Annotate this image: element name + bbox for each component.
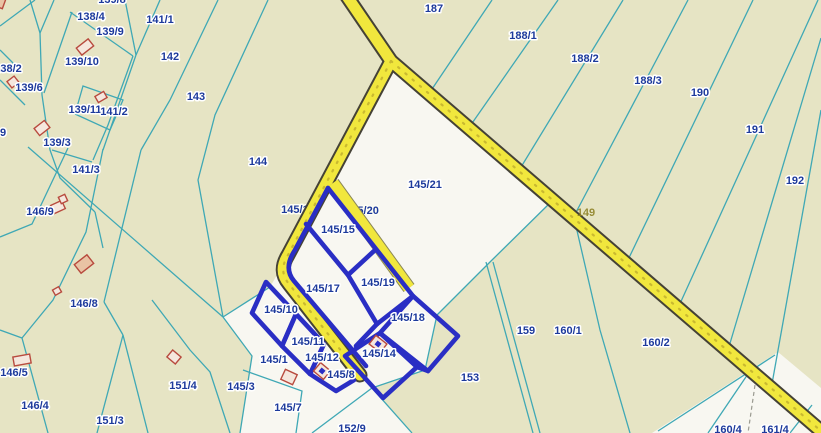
- parcel-label-141-2[interactable]: 141/2: [100, 106, 128, 118]
- building-icon: [13, 354, 31, 366]
- parcel-label-160-1[interactable]: 160/1: [554, 325, 582, 337]
- parcel-label-146-5[interactable]: 146/5: [0, 367, 28, 379]
- parcel-label-151-4[interactable]: 151/4: [169, 380, 197, 392]
- parcel-label-145-21[interactable]: 145/21: [408, 179, 442, 191]
- parcel-label-141-3[interactable]: 141/3: [72, 164, 100, 176]
- parcel-label-159[interactable]: 159: [517, 325, 535, 337]
- parcel-label-142[interactable]: 142: [161, 51, 179, 63]
- parcel-label-151-3[interactable]: 151/3: [96, 415, 124, 427]
- parcel-label-191[interactable]: 191: [746, 124, 764, 136]
- parcel-label-139-11[interactable]: 139/11: [68, 104, 101, 116]
- parcel-label-188-2[interactable]: 188/2: [571, 53, 599, 65]
- parcel-label-145-18[interactable]: 145/18: [391, 312, 425, 324]
- parcel-label-187[interactable]: 187: [425, 3, 443, 15]
- parcel-label-145-7[interactable]: 145/7: [274, 402, 302, 414]
- parcel-label-144[interactable]: 144: [249, 156, 268, 168]
- parcel-label-138-2[interactable]: 138/2: [0, 63, 22, 75]
- parcel-label-190[interactable]: 190: [691, 87, 709, 99]
- parcel-label-9[interactable]: 9: [0, 127, 6, 139]
- parcel-label-139-10[interactable]: 139/10: [65, 56, 99, 68]
- parcel-label-161-4[interactable]: 161/4: [761, 424, 789, 433]
- parcel-label-146-4[interactable]: 146/4: [21, 400, 49, 412]
- map-viewport[interactable]: 145/16145/20 149 139/8138/4139/9141/1142…: [0, 0, 821, 433]
- parcel-label-160-4[interactable]: 160/4: [714, 424, 742, 433]
- parcel-label-139-3[interactable]: 139/3: [43, 137, 71, 149]
- parcel-label-141-1[interactable]: 141/1: [146, 14, 174, 26]
- map-canvas[interactable]: 145/16145/20 149 139/8138/4139/9141/1142…: [0, 0, 821, 433]
- parcel-label-145-11[interactable]: 145/11: [291, 336, 324, 348]
- parcel-label-188-1[interactable]: 188/1: [509, 30, 537, 42]
- parcel-label-145-12[interactable]: 145/12: [305, 352, 339, 364]
- parcel-label-160-2[interactable]: 160/2: [642, 337, 670, 349]
- parcel-label-139-6[interactable]: 139/6: [15, 82, 43, 94]
- road-parcel-labels: 149: [577, 207, 595, 219]
- parcel-label-192[interactable]: 192: [786, 175, 804, 187]
- parcel-label-145-3[interactable]: 145/3: [227, 381, 255, 393]
- parcel-label-146-9[interactable]: 146/9: [26, 206, 54, 218]
- parcel-label-145-17[interactable]: 145/17: [306, 283, 340, 295]
- parcel-label-145-15[interactable]: 145/15: [321, 224, 355, 236]
- parcel-label-139-8[interactable]: 139/8: [98, 0, 126, 6]
- parcel-label-145-10[interactable]: 145/10: [264, 304, 298, 316]
- parcel-label-188-3[interactable]: 188/3: [634, 75, 662, 87]
- parcel-label-145-1[interactable]: 145/1: [260, 354, 288, 366]
- parcel-label-152-9[interactable]: 152/9: [338, 423, 366, 433]
- parcel-label-138-4[interactable]: 138/4: [77, 11, 105, 23]
- parcel-label-146-8[interactable]: 146/8: [70, 298, 98, 310]
- parcel-label-145-14[interactable]: 145/14: [362, 348, 397, 360]
- parcel-label-153[interactable]: 153: [461, 372, 479, 384]
- parcel-label-145-19[interactable]: 145/19: [361, 277, 395, 289]
- parcel-label-145-8[interactable]: 145/8: [327, 369, 355, 381]
- parcel-label-143[interactable]: 143: [187, 91, 205, 103]
- road-parcel-label-149: 149: [577, 207, 595, 219]
- parcel-label-139-9[interactable]: 139/9: [96, 26, 124, 38]
